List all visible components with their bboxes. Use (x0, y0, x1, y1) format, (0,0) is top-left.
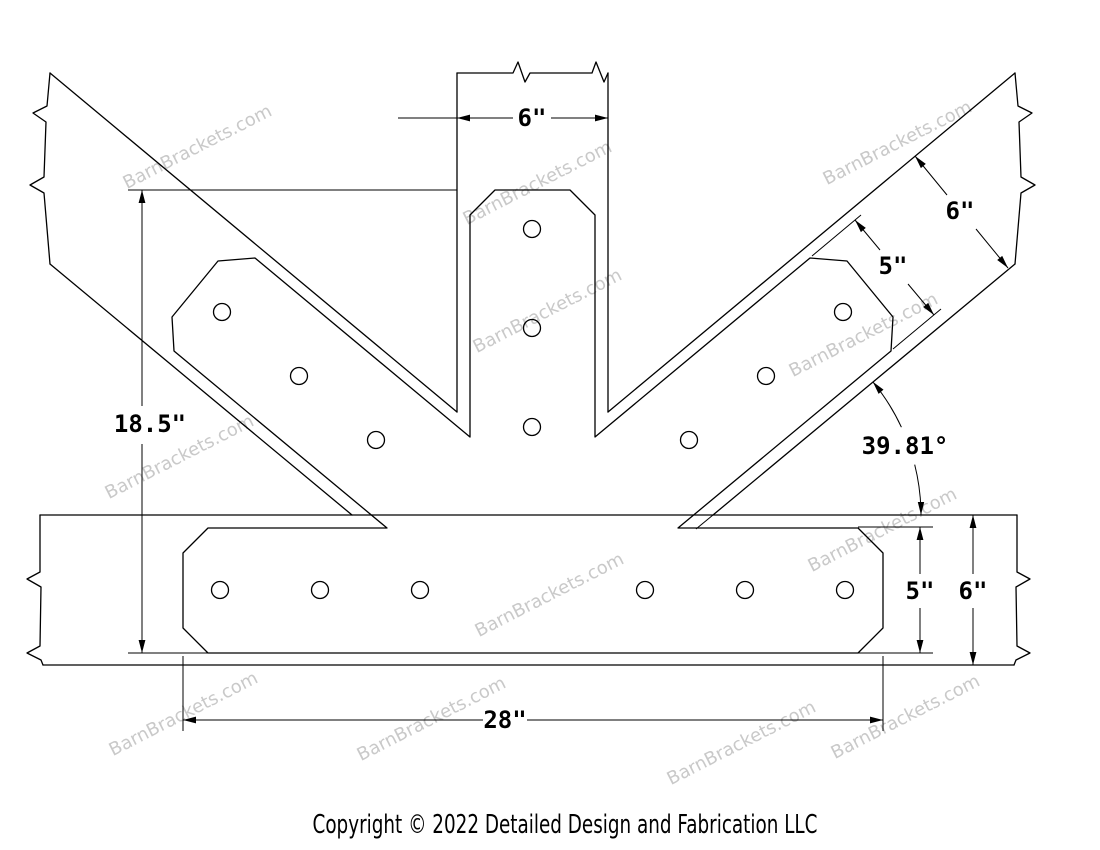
bracket-drawing: BarnBrackets.com BarnBrackets.com BarnBr… (0, 0, 1100, 850)
copyright-text: Copyright © 2022 Detailed Design and Fab… (313, 810, 818, 840)
dimension-label: 6" (959, 577, 988, 605)
dimension-label: 39.81° (862, 432, 949, 460)
dimension-label: 28" (483, 706, 526, 734)
dimension-label: 6" (518, 104, 547, 132)
dimension-label: 18.5" (114, 410, 186, 438)
dimension-label: 5" (879, 252, 908, 280)
dimension-label: 6" (946, 197, 975, 225)
drawing-canvas: BarnBrackets.com BarnBrackets.com BarnBr… (0, 0, 1100, 850)
dimension-label: 5" (906, 577, 935, 605)
